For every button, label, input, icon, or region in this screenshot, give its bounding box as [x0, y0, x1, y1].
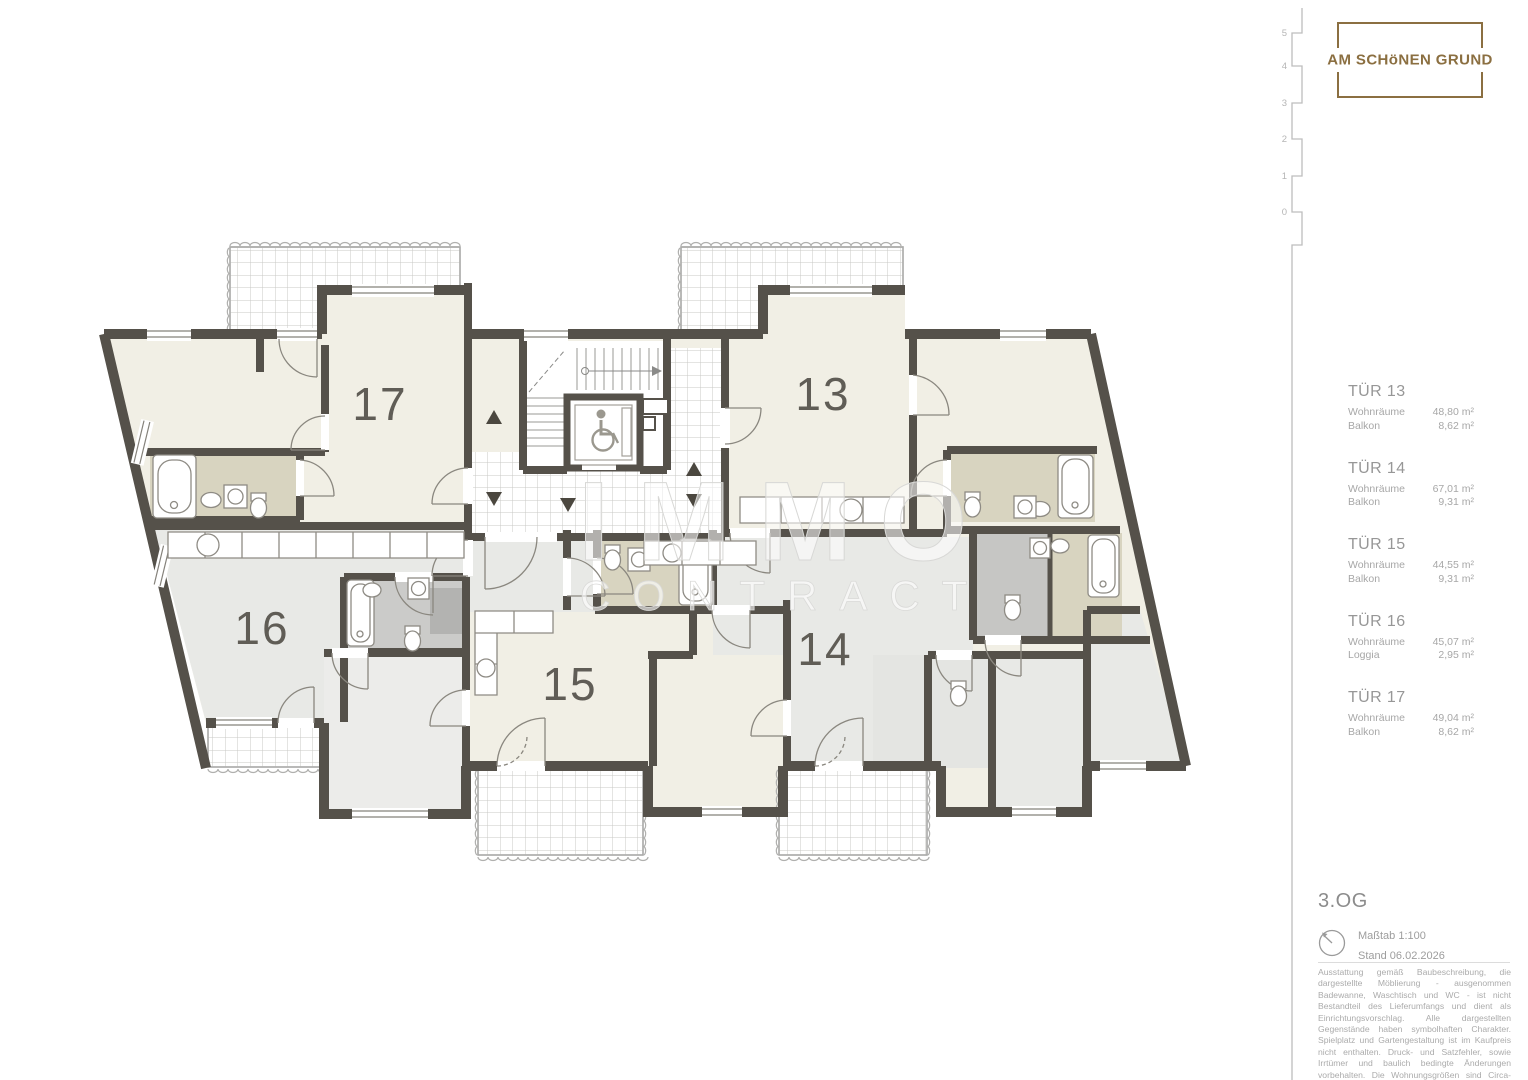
- apartment-item-tuer-16: TÜR 16 Wohnräume45,07 m² Loggia2,95 m²: [1348, 613, 1474, 690]
- floor-level-5: 5: [1282, 28, 1287, 39]
- floor-level-4: 4: [1282, 61, 1287, 72]
- area-label: Wohnräume: [1348, 636, 1405, 650]
- apartment-area-row: Balkon9,31 m²: [1348, 496, 1474, 510]
- logo-frame-bottom: [1337, 72, 1483, 98]
- room-label-15: 15: [542, 658, 597, 710]
- apartment-item-tuer-15: TÜR 15 Wohnräume44,55 m² Balkon9,31 m²: [1348, 536, 1474, 613]
- area-label: Balkon: [1348, 420, 1380, 434]
- date-label: Stand 06.02.2026: [1358, 946, 1445, 966]
- apartment-area-row: Wohnräume67,01 m²: [1348, 483, 1474, 497]
- area-value: 48,80 m²: [1433, 406, 1474, 420]
- watermark-line1: IMMO: [578, 459, 995, 584]
- apartment-list: TÜR 13 Wohnräume48,80 m² Balkon8,62 m² T…: [1348, 383, 1474, 766]
- area-value: 2,95 m²: [1438, 649, 1474, 663]
- apartment-area-row: Balkon8,62 m²: [1348, 420, 1474, 434]
- logo-text: AM SCHöNEN GRUND: [1327, 52, 1493, 69]
- compass-icon: [1318, 928, 1348, 958]
- scale-label: Maßtab 1:100: [1358, 926, 1445, 946]
- floor-level-2: 2: [1282, 134, 1287, 145]
- apartment-area-row: Loggia2,95 m²: [1348, 649, 1474, 663]
- area-value: 44,55 m²: [1433, 559, 1474, 573]
- apartment-item-tuer-13: TÜR 13 Wohnräume48,80 m² Balkon8,62 m²: [1348, 383, 1474, 460]
- area-value: 8,62 m²: [1438, 726, 1474, 740]
- area-value: 9,31 m²: [1438, 573, 1474, 587]
- area-label: Wohnräume: [1348, 712, 1405, 726]
- apartment-title: TÜR 16: [1348, 613, 1474, 631]
- floor-plan: IMMO CONTRACT 17 13 16 15 14: [0, 0, 1292, 1080]
- area-value: 67,01 m²: [1433, 483, 1474, 497]
- floorplan-sheet: IMMO CONTRACT 17 13 16 15 14 5 4 3 2 1 0…: [0, 0, 1528, 1080]
- plan-meta: Maßtab 1:100 Stand 06.02.2026: [1358, 926, 1445, 966]
- area-value: 49,04 m²: [1433, 712, 1474, 726]
- room-label-17: 17: [352, 378, 407, 430]
- floor-label: 3.OG: [1318, 890, 1368, 913]
- area-label: Balkon: [1348, 573, 1380, 587]
- apartment-title: TÜR 17: [1348, 689, 1474, 707]
- area-label: Wohnräume: [1348, 406, 1405, 420]
- area-label: Loggia: [1348, 649, 1380, 663]
- apartment-title: TÜR 13: [1348, 383, 1474, 401]
- floor-level-0: 0: [1282, 207, 1287, 218]
- apartment-area-row: Wohnräume49,04 m²: [1348, 712, 1474, 726]
- area-value: 45,07 m²: [1433, 636, 1474, 650]
- room-label-13: 13: [795, 368, 850, 420]
- apartment-title: TÜR 14: [1348, 460, 1474, 478]
- apartment-area-row: Wohnräume45,07 m²: [1348, 636, 1474, 650]
- apartment-area-row: Balkon8,62 m²: [1348, 726, 1474, 740]
- watermark-line2: CONTRACT: [580, 572, 989, 619]
- apartment-area-row: Wohnräume44,55 m²: [1348, 559, 1474, 573]
- area-label: Wohnräume: [1348, 559, 1405, 573]
- apartment-item-tuer-14: TÜR 14 Wohnräume67,01 m² Balkon9,31 m²: [1348, 460, 1474, 537]
- area-label: Balkon: [1348, 726, 1380, 740]
- floor-level-1: 1: [1282, 171, 1287, 182]
- apartment-area-row: Balkon9,31 m²: [1348, 573, 1474, 587]
- footer-divider: [1318, 962, 1510, 963]
- floor-level-indicator: 5 4 3 2 1 0: [1270, 0, 1320, 1080]
- logo-frame-top: [1337, 22, 1483, 48]
- area-label: Wohnräume: [1348, 483, 1405, 497]
- area-label: Balkon: [1348, 496, 1380, 510]
- apartment-item-tuer-17: TÜR 17 Wohnräume49,04 m² Balkon8,62 m²: [1348, 689, 1474, 766]
- area-value: 8,62 m²: [1438, 420, 1474, 434]
- disclaimer-text: Ausstattung gemäß Baubeschreibung, die d…: [1318, 967, 1511, 1080]
- watermark: IMMO CONTRACT: [578, 459, 995, 619]
- brand-logo: AM SCHöNEN GRUND: [1337, 22, 1483, 98]
- area-value: 9,31 m²: [1438, 496, 1474, 510]
- apartment-title: TÜR 15: [1348, 536, 1474, 554]
- floor-level-3: 3: [1282, 98, 1287, 109]
- room-label-14: 14: [797, 623, 852, 675]
- apartment-area-row: Wohnräume48,80 m²: [1348, 406, 1474, 420]
- room-label-16: 16: [234, 602, 289, 654]
- floor-divider-line: [1292, 8, 1302, 1080]
